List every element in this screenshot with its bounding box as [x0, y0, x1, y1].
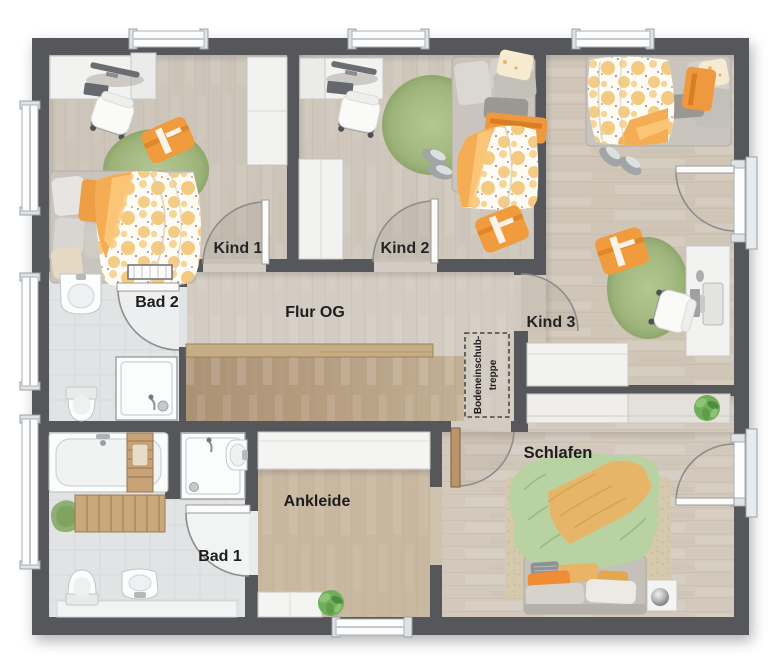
svg-text:Schlafen: Schlafen	[524, 444, 593, 462]
svg-text:Bad 1: Bad 1	[198, 548, 242, 565]
svg-text:Bodeneinschub-: Bodeneinschub-	[473, 336, 484, 414]
svg-text:Bad 2: Bad 2	[135, 294, 179, 311]
svg-text:Flur OG: Flur OG	[285, 304, 345, 321]
svg-text:treppe: treppe	[488, 359, 499, 390]
svg-text:Ankleide: Ankleide	[284, 493, 351, 510]
